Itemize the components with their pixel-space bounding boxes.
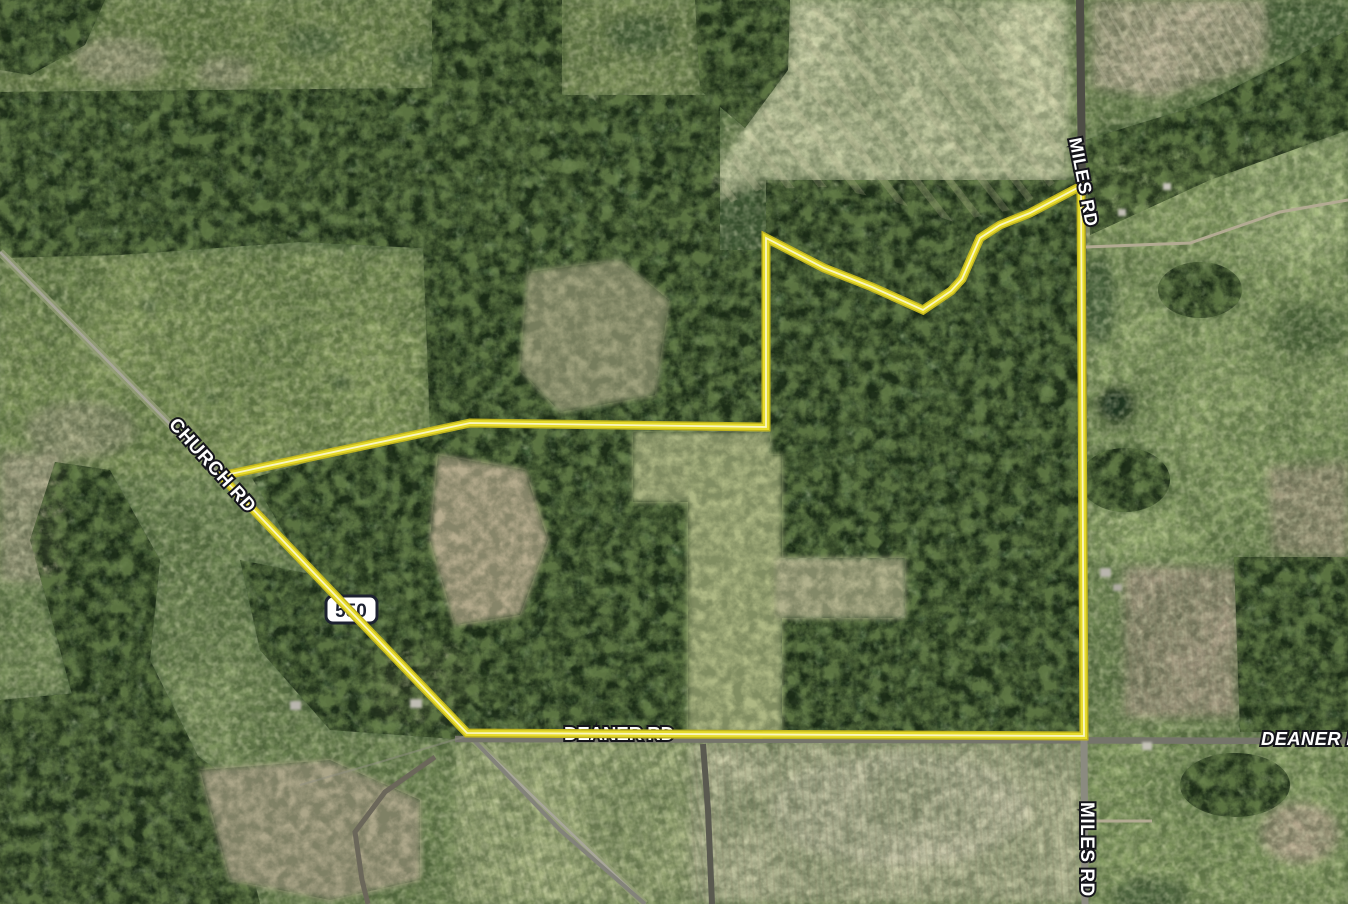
svg-text:MILES RD: MILES RD bbox=[1076, 802, 1097, 897]
svg-text:DEANER R: DEANER R bbox=[1261, 728, 1348, 749]
